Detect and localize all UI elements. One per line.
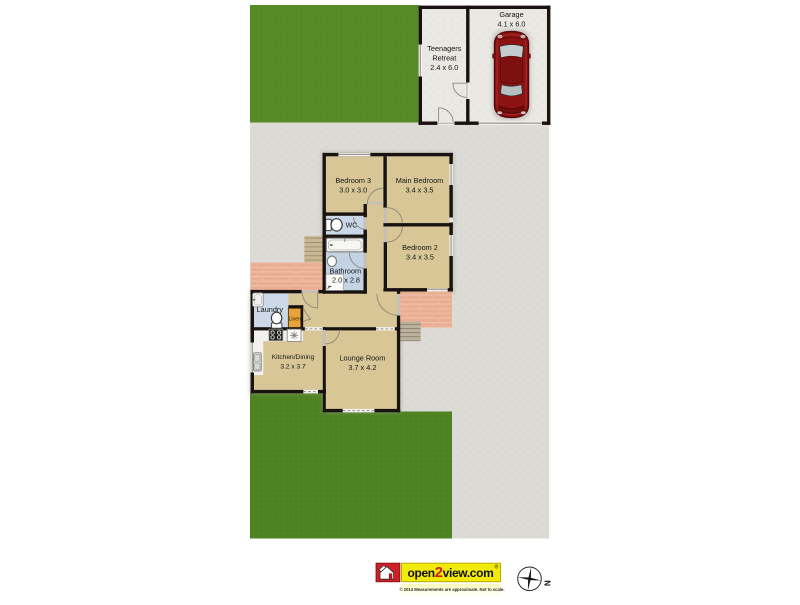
svg-text:open2view.com: open2view.com xyxy=(408,565,494,581)
svg-text:WC: WC xyxy=(346,223,358,230)
svg-text:3.4 x 3.5: 3.4 x 3.5 xyxy=(406,253,434,262)
svg-text:2.0 x 2.8: 2.0 x 2.8 xyxy=(332,276,360,285)
svg-text:Teenagers: Teenagers xyxy=(427,44,461,53)
svg-text:Retreat: Retreat xyxy=(432,54,456,63)
svg-text:Kitchen/Dining: Kitchen/Dining xyxy=(272,354,315,361)
svg-text:2.4 x 6.0: 2.4 x 6.0 xyxy=(430,63,458,72)
svg-text:Bedroom 2: Bedroom 2 xyxy=(402,243,438,252)
svg-text:3.4 x 3.5: 3.4 x 3.5 xyxy=(406,186,434,195)
svg-text:N: N xyxy=(542,580,551,586)
svg-text:3.0 x 3.0: 3.0 x 3.0 xyxy=(339,186,367,195)
svg-text:®: ® xyxy=(495,564,499,571)
svg-text:Laundry: Laundry xyxy=(257,305,284,314)
svg-text:© 2014 Measurements are approx: © 2014 Measurements are approximate. Not… xyxy=(400,586,505,592)
svg-text:Garage: Garage xyxy=(499,10,523,19)
svg-text:Linen: Linen xyxy=(289,316,301,322)
svg-text:Lounge Room: Lounge Room xyxy=(339,354,385,363)
svg-text:Bedroom 3: Bedroom 3 xyxy=(335,176,371,185)
svg-text:3.7 x 4.2: 3.7 x 4.2 xyxy=(348,363,376,372)
svg-text:Bathroom: Bathroom xyxy=(329,266,361,275)
svg-text:Main Bedroom: Main Bedroom xyxy=(396,176,443,185)
svg-text:3.2 x 3.7: 3.2 x 3.7 xyxy=(280,364,306,371)
svg-text:4.1 x 6.0: 4.1 x 6.0 xyxy=(498,20,526,29)
